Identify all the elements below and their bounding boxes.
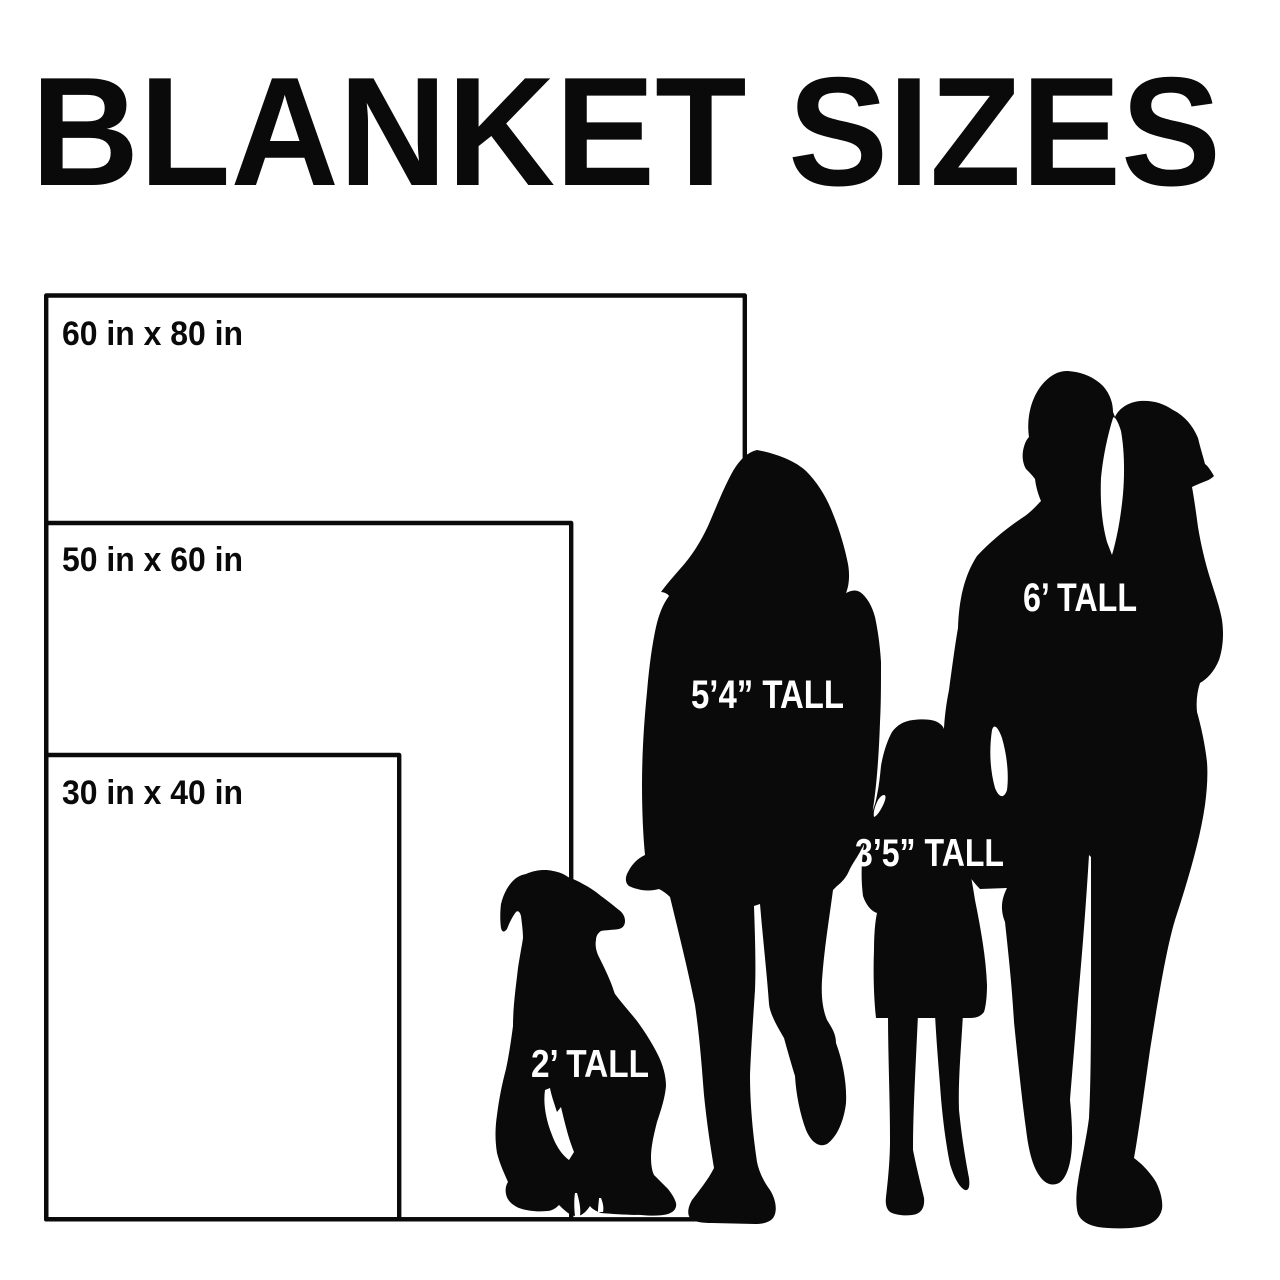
- svg-text:BLANKET SIZES: BLANKET SIZES: [31, 45, 1221, 218]
- svg-text:60 in x 80 in: 60 in x 80 in: [62, 315, 243, 353]
- svg-text:3’5” TALL: 3’5” TALL: [855, 832, 1004, 875]
- svg-text:6’ TALL: 6’ TALL: [1023, 576, 1137, 620]
- svg-text:2’ TALL: 2’ TALL: [531, 1043, 649, 1086]
- svg-text:5’4” TALL: 5’4” TALL: [691, 673, 844, 717]
- svg-text:50 in x 60 in: 50 in x 60 in: [62, 541, 243, 579]
- svg-text:30 in x 40 in: 30 in x 40 in: [62, 774, 243, 812]
